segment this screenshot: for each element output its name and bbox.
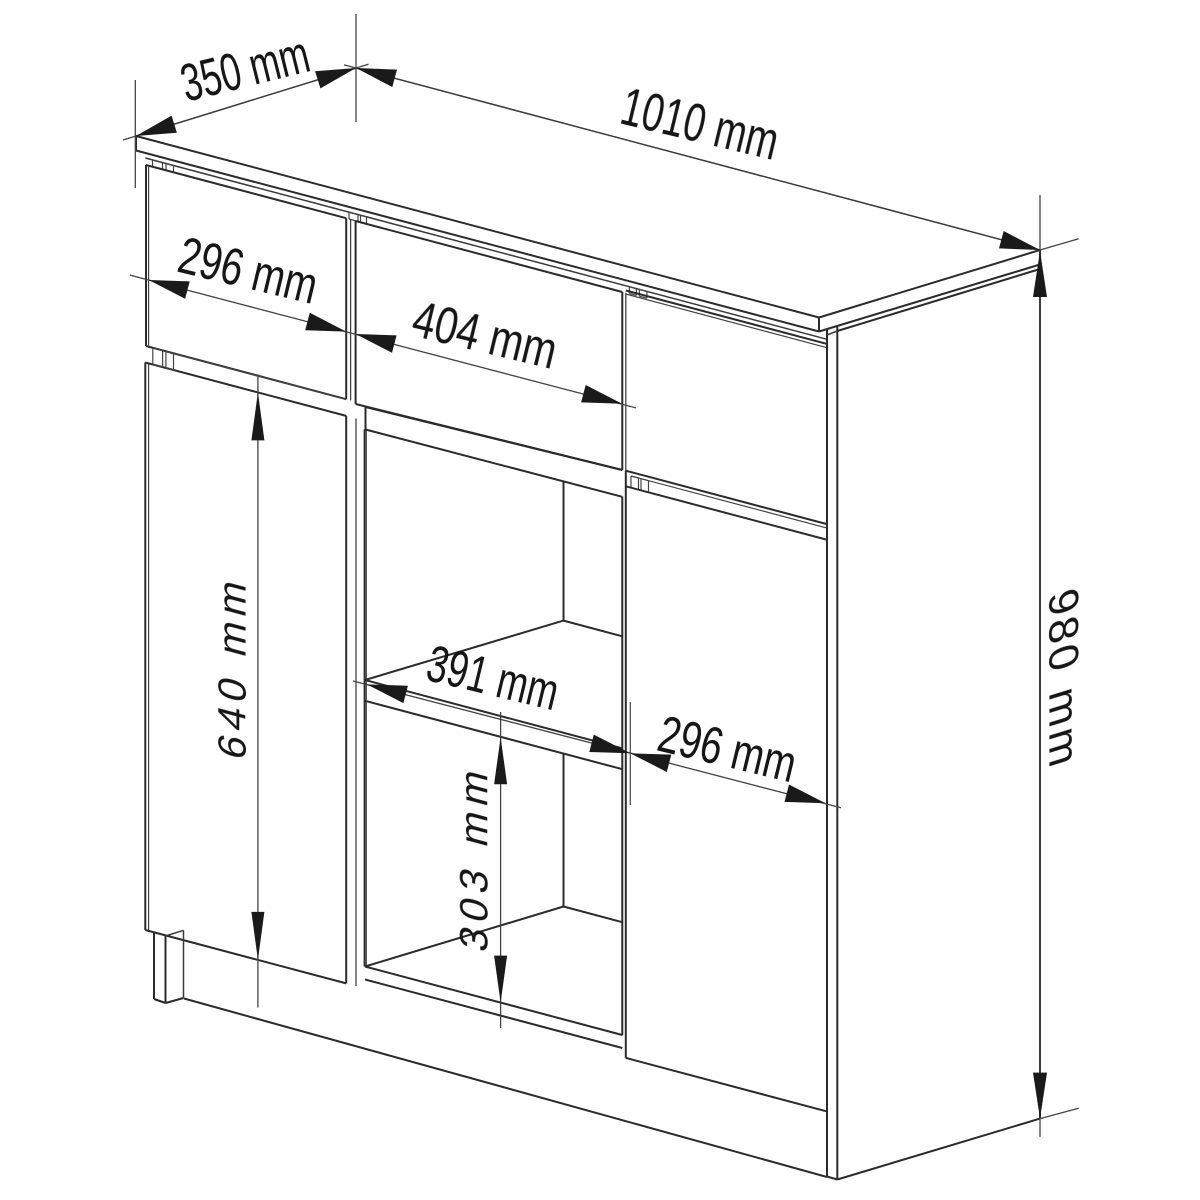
svg-text:640 mm: 640 mm	[210, 569, 254, 764]
svg-text:980 mm: 980 mm	[1040, 583, 1087, 776]
svg-text:303 mm: 303 mm	[451, 758, 495, 956]
